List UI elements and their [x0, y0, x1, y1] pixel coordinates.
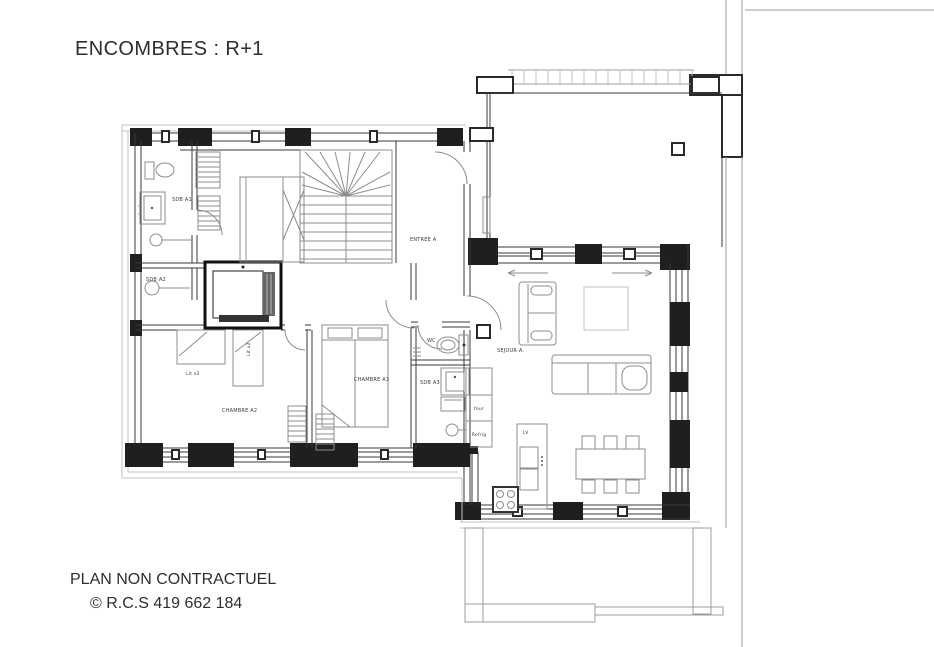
chair	[626, 436, 639, 449]
label-lit-x2-vertical: Lit x2	[246, 342, 252, 356]
wall-pier	[660, 244, 690, 270]
toilet-wc	[437, 335, 468, 355]
appliance	[441, 397, 465, 411]
loveseat-sofa	[519, 282, 556, 345]
door-swing	[435, 152, 467, 184]
stove	[493, 487, 518, 512]
label-entree-a: ENTREE A	[410, 237, 437, 243]
wall-pier	[290, 443, 358, 467]
wall-pier	[553, 502, 583, 520]
rug	[584, 287, 628, 330]
label-chambre-a2: CHAMBRE A2	[222, 408, 257, 414]
terrace-pier	[692, 77, 719, 93]
footer-copyright: © R.C.S 419 662 184	[90, 595, 242, 613]
wall-pier	[178, 128, 212, 146]
chair	[626, 480, 639, 493]
label-lv: LV	[523, 430, 529, 436]
footer-disclaimer: PLAN NON CONTRACTUEL	[70, 571, 276, 589]
label-chambre-a3: CHAMBRE A3	[354, 377, 389, 383]
column	[477, 325, 490, 338]
bed-chambre-a1	[240, 177, 304, 262]
dining-table	[576, 436, 645, 493]
label-sejour-a: SEJOUR A.	[497, 348, 524, 354]
bed-chambre-a2-2	[233, 330, 263, 386]
wall-pier	[437, 128, 463, 146]
floor-plan-canvas: SDB A1 SDB A2 ENTREE A WC SDB A3 CHAMBRE…	[0, 0, 934, 647]
door-swing	[197, 210, 222, 235]
terrace-pier	[477, 77, 513, 93]
terrace-pier	[470, 128, 493, 141]
door-swing	[285, 330, 305, 350]
wall-pier	[285, 128, 311, 146]
elevator	[205, 262, 281, 328]
wall-pier	[130, 320, 142, 336]
label-sdb-a3: SDB A3	[420, 380, 440, 386]
fixture-symbol	[145, 281, 159, 295]
label-refrig: Refrig	[472, 432, 486, 438]
wall-pier	[662, 492, 690, 520]
chair	[582, 480, 595, 493]
label-wc: WC	[427, 338, 436, 344]
wall-pier	[670, 302, 690, 346]
door-swing	[386, 300, 414, 328]
wall-pier	[670, 420, 690, 468]
wall-pier	[455, 502, 481, 520]
chair	[604, 436, 617, 449]
terrace-drain	[672, 143, 684, 155]
room-labels: SDB A1 SDB A2 ENTREE A WC SDB A3 CHAMBRE…	[146, 197, 529, 438]
kitchen-island	[517, 424, 547, 509]
closet-shelves	[196, 152, 220, 230]
chair	[582, 436, 595, 449]
upper-terrace	[470, 70, 722, 247]
bedroom-wing	[122, 125, 470, 522]
wall-pier	[413, 443, 470, 467]
label-sdb-a1: SDB A1	[172, 197, 192, 203]
label-four: four	[474, 406, 484, 412]
sink-sdb-a3	[441, 368, 469, 395]
floor-plan-page: ENCOMBRES : R+1	[0, 0, 934, 647]
bed-chambre-a2-1	[177, 330, 225, 364]
wall-pier	[670, 372, 688, 392]
sejour-walls	[435, 141, 690, 520]
wall-pier	[575, 244, 602, 264]
bed-chambre-a3	[322, 325, 388, 427]
label-sdb-a2: SDB A2	[146, 277, 166, 283]
toilet-sdb-a1	[145, 162, 174, 179]
wall-pier	[188, 443, 234, 467]
chair	[604, 480, 617, 493]
sink-sdb-a1	[138, 192, 165, 224]
staircase	[300, 150, 392, 263]
sejour-furniture	[446, 282, 651, 512]
context-buildings	[690, 0, 934, 647]
fixture-symbol	[150, 234, 162, 246]
label-lit-x2: Lit x2	[186, 371, 200, 377]
wall-pier	[468, 238, 498, 265]
wall-pier	[125, 443, 163, 467]
lower-terrace	[460, 522, 723, 622]
door-swing	[418, 325, 442, 349]
three-seat-sofa	[552, 355, 651, 394]
